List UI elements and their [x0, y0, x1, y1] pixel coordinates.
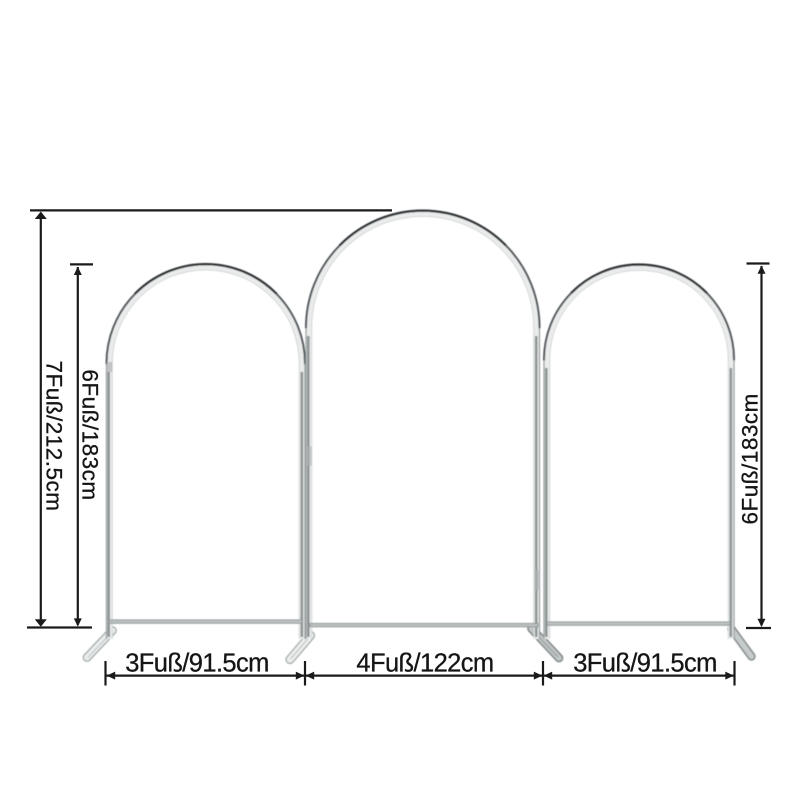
svg-text:7Fuß/212.5cm: 7Fuß/212.5cm: [42, 360, 67, 511]
svg-text:3Fuß/91.5cm: 3Fuß/91.5cm: [125, 649, 269, 677]
svg-text:3Fuß/91.5cm: 3Fuß/91.5cm: [573, 649, 717, 677]
svg-text:6Fuß/183cm: 6Fuß/183cm: [737, 393, 762, 524]
svg-text:6Fuß/183cm: 6Fuß/183cm: [77, 369, 102, 500]
svg-text:4Fuß/122cm: 4Fuß/122cm: [356, 649, 493, 677]
